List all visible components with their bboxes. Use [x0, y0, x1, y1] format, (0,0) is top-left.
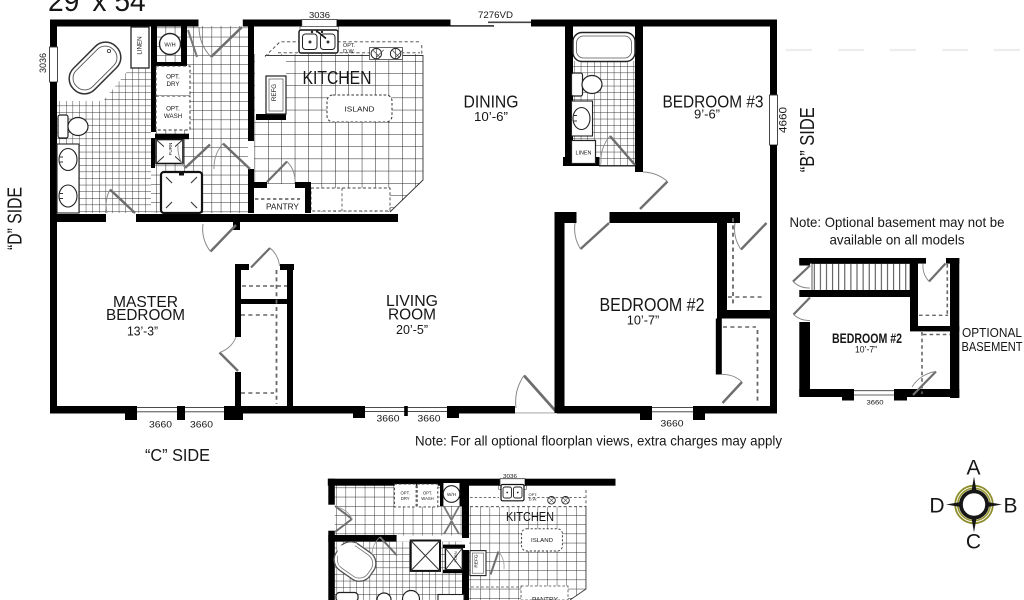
- svg-text:available on all models: available on all models: [830, 233, 965, 248]
- svg-text:3660: 3660: [867, 400, 884, 407]
- svg-text:PANTRY: PANTRY: [266, 202, 299, 212]
- svg-text:FURN: FURN: [168, 143, 173, 156]
- svg-text:BEDROOM: BEDROOM: [106, 307, 185, 324]
- svg-text:ROOM: ROOM: [388, 307, 436, 324]
- svg-text:ISLAND: ISLAND: [531, 538, 553, 544]
- svg-text:10’-6”: 10’-6”: [474, 110, 508, 124]
- svg-text:B: B: [1003, 495, 1017, 518]
- svg-text:Note: Optional basement may no: Note: Optional basement may not be: [790, 215, 1005, 230]
- svg-text:3660: 3660: [418, 414, 441, 425]
- svg-text:“B” SIDE: “B” SIDE: [796, 107, 819, 172]
- svg-text:FURN: FURN: [453, 551, 458, 562]
- svg-text:7276VD: 7276VD: [478, 10, 513, 21]
- svg-text:OPTIONAL: OPTIONAL: [962, 325, 1022, 340]
- svg-text:9’-6”: 9’-6”: [694, 107, 720, 122]
- svg-text:OPT.: OPT.: [401, 491, 410, 496]
- svg-text:REFG: REFG: [271, 84, 278, 101]
- svg-text:3660: 3660: [377, 414, 400, 425]
- svg-text:20’-5”: 20’-5”: [396, 323, 428, 337]
- svg-text:10’-7”: 10’-7”: [627, 314, 660, 328]
- svg-text:LINEN: LINEN: [137, 36, 144, 54]
- svg-text:OPT.: OPT.: [166, 106, 180, 113]
- svg-text:REFG: REFG: [474, 554, 480, 568]
- svg-text:OPT.: OPT.: [423, 491, 432, 496]
- svg-text:BASEMENT: BASEMENT: [962, 339, 1023, 354]
- svg-text:D: D: [929, 495, 944, 518]
- svg-text:BEDROOM #2: BEDROOM #2: [600, 295, 705, 315]
- svg-text:DINING: DINING: [464, 92, 519, 112]
- svg-text:A: A: [966, 457, 980, 480]
- svg-text:4660: 4660: [778, 107, 790, 133]
- svg-text:D.W.: D.W.: [343, 49, 355, 55]
- svg-text:3660: 3660: [661, 419, 684, 430]
- svg-text:10’-7”: 10’-7”: [855, 345, 877, 355]
- svg-text:C: C: [966, 531, 981, 554]
- svg-text:KITCHEN: KITCHEN: [506, 510, 554, 524]
- svg-text:WASH: WASH: [421, 496, 433, 501]
- svg-text:DRY: DRY: [401, 496, 410, 501]
- svg-text:29’ x 54’: 29’ x 54’: [48, 0, 152, 18]
- svg-text:W/H: W/H: [164, 42, 175, 48]
- svg-text:“D” SIDE: “D” SIDE: [4, 187, 27, 250]
- svg-text:3036: 3036: [38, 53, 48, 73]
- svg-text:3660: 3660: [190, 420, 213, 431]
- svg-text:W/H: W/H: [447, 492, 456, 497]
- svg-text:Note: For all optional floorpl: Note: For all optional floorplan views, …: [415, 434, 782, 449]
- svg-text:3036: 3036: [503, 474, 517, 480]
- svg-text:3036: 3036: [309, 10, 330, 20]
- svg-text:LINEN: LINEN: [576, 151, 592, 157]
- svg-text:13’-3”: 13’-3”: [127, 325, 158, 339]
- svg-text:KITCHEN: KITCHEN: [303, 68, 372, 88]
- svg-text:WASH: WASH: [164, 113, 182, 120]
- svg-text:PANTRY: PANTRY: [532, 597, 559, 600]
- svg-text:OPT.: OPT.: [166, 74, 180, 81]
- svg-text:ISLAND: ISLAND: [345, 105, 376, 114]
- svg-text:DRY: DRY: [167, 81, 180, 88]
- svg-text:“C” SIDE: “C” SIDE: [145, 445, 210, 465]
- svg-text:3660: 3660: [149, 420, 172, 431]
